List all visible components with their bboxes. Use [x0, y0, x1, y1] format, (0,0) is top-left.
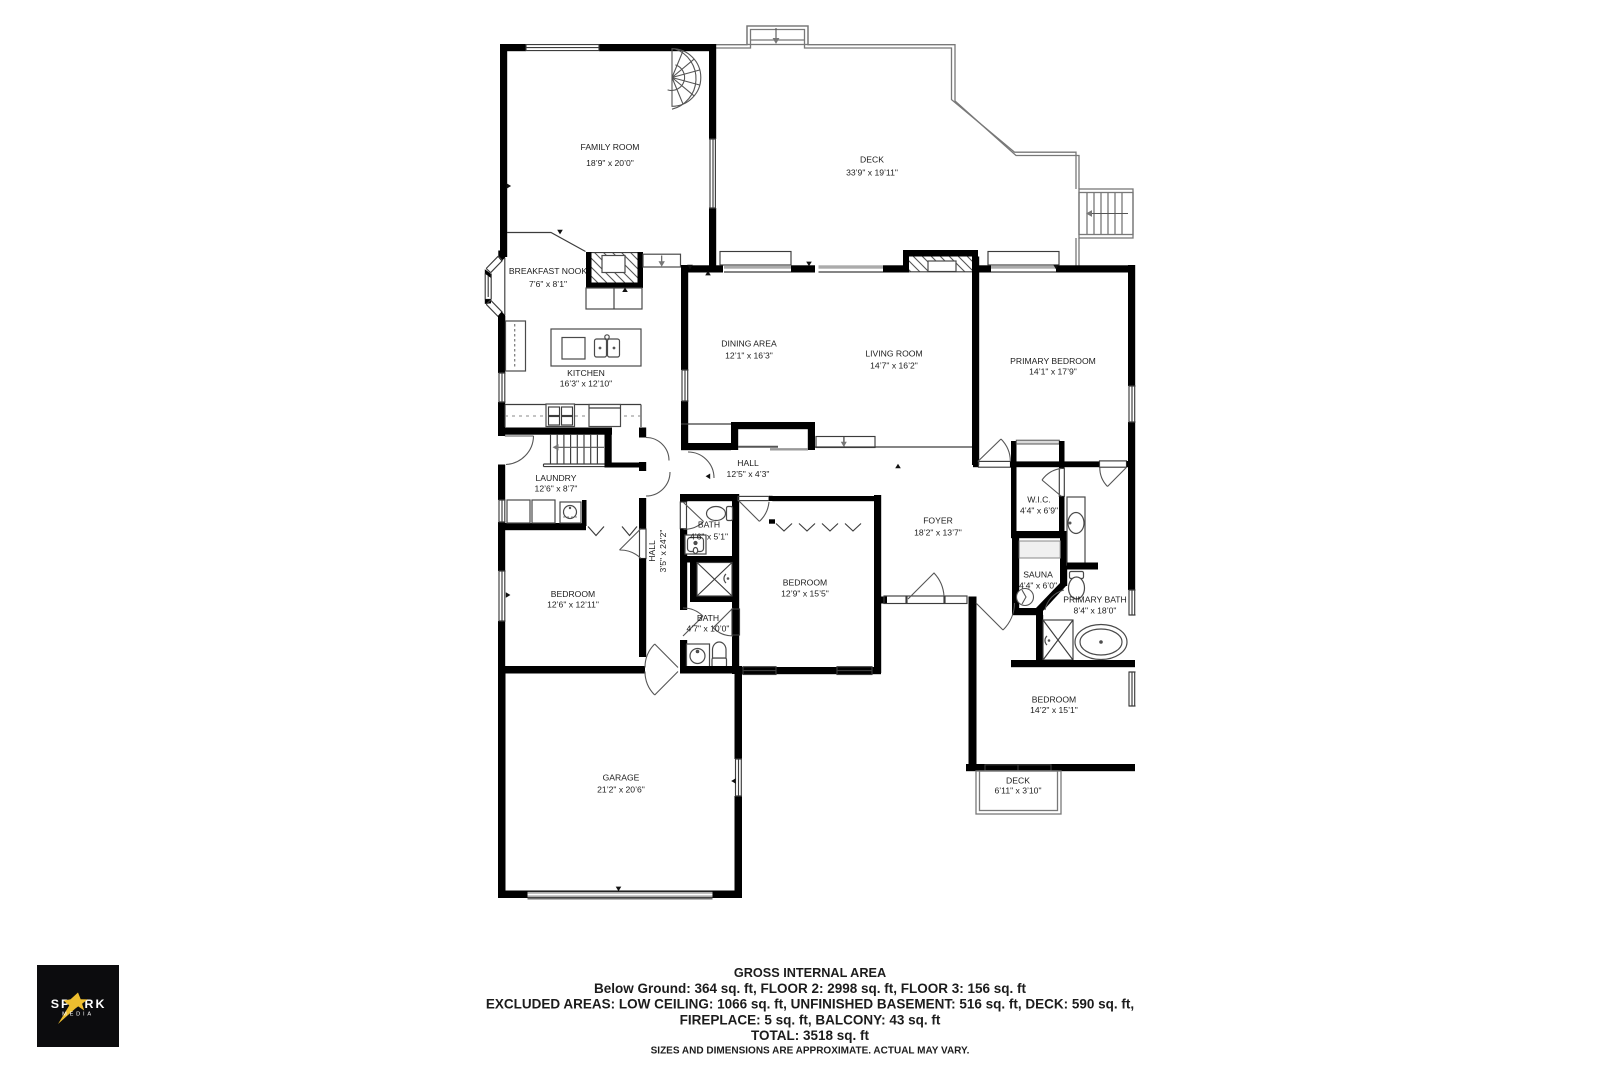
svg-text:RK: RK — [85, 997, 107, 1011]
svg-text:HALL: HALL — [647, 540, 657, 562]
svg-text:KITCHEN: KITCHEN — [567, 368, 605, 378]
svg-text:EXCLUDED AREAS: LOW CEILING: 1: EXCLUDED AREAS: LOW CEILING: 1066 sq. ft… — [486, 997, 1134, 1012]
svg-text:GROSS INTERNAL AREA: GROSS INTERNAL AREA — [734, 966, 886, 980]
svg-text:FIREPLACE: 5 sq. ft, BALCONY:: FIREPLACE: 5 sq. ft, BALCONY: 43 sq. ft — [680, 1012, 941, 1027]
svg-text:8’4" x 18’0": 8’4" x 18’0" — [1074, 606, 1117, 616]
svg-text:BEDROOM: BEDROOM — [551, 589, 595, 599]
svg-text:Below Ground: 364 sq. ft, FLOO: Below Ground: 364 sq. ft, FLOOR 2: 2998 … — [594, 981, 1027, 996]
svg-text:SIZES AND DIMENSIONS ARE APPRO: SIZES AND DIMENSIONS ARE APPROXIMATE. AC… — [651, 1046, 970, 1057]
svg-text:BATH: BATH — [697, 613, 719, 623]
svg-text:16’3" x 12’10": 16’3" x 12’10" — [560, 379, 612, 389]
svg-text:4’4" x 6’9": 4’4" x 6’9" — [1020, 506, 1058, 516]
svg-text:BATH: BATH — [698, 520, 720, 530]
svg-text:12’9" x 15’5": 12’9" x 15’5" — [781, 589, 829, 599]
svg-text:6’11" x 3’10": 6’11" x 3’10" — [994, 786, 1041, 796]
svg-text:TOTAL: 3518 sq. ft: TOTAL: 3518 sq. ft — [751, 1028, 870, 1043]
svg-text:14’1" x 17’9": 14’1" x 17’9" — [1029, 367, 1077, 377]
svg-text:12’5" x 4’3": 12’5" x 4’3" — [727, 469, 770, 479]
svg-text:4’7" x 10’0": 4’7" x 10’0" — [687, 624, 730, 634]
svg-text:14’2" x 15’1": 14’2" x 15’1" — [1030, 705, 1078, 715]
svg-text:21’2" x 20’6": 21’2" x 20’6" — [597, 785, 645, 795]
svg-text:W.I.C.: W.I.C. — [1027, 495, 1050, 505]
svg-text:3’5" x 24’2": 3’5" x 24’2" — [658, 530, 668, 573]
svg-text:14’7" x 16’2": 14’7" x 16’2" — [870, 361, 918, 371]
svg-text:BEDROOM: BEDROOM — [1032, 695, 1076, 705]
svg-text:PRIMARY BATH: PRIMARY BATH — [1063, 595, 1127, 605]
svg-text:FOYER: FOYER — [923, 516, 953, 526]
svg-text:4’4" x 6’0": 4’4" x 6’0" — [1019, 581, 1057, 591]
svg-text:LAUNDRY: LAUNDRY — [536, 473, 577, 483]
svg-text:GARAGE: GARAGE — [603, 773, 640, 783]
svg-text:33’9" x 19’11": 33’9" x 19’11" — [846, 168, 898, 178]
svg-text:PRIMARY BEDROOM: PRIMARY BEDROOM — [1010, 356, 1096, 366]
svg-text:12’1" x 16’3": 12’1" x 16’3" — [725, 351, 773, 361]
svg-text:HALL: HALL — [737, 458, 759, 468]
svg-text:12’6" x 8’7": 12’6" x 8’7" — [535, 484, 578, 494]
svg-text:4’6" x 5’1": 4’6" x 5’1" — [690, 532, 728, 542]
svg-text:BEDROOM: BEDROOM — [783, 578, 827, 588]
svg-text:12’6" x 12’11": 12’6" x 12’11" — [547, 600, 599, 610]
svg-text:MEDIA: MEDIA — [62, 1012, 94, 1018]
svg-text:LIVING ROOM: LIVING ROOM — [865, 349, 922, 359]
svg-text:18’2" x 13’7": 18’2" x 13’7" — [914, 528, 962, 538]
svg-text:BREAKFAST NOOK: BREAKFAST NOOK — [509, 266, 587, 276]
svg-text:SAUNA: SAUNA — [1023, 570, 1053, 580]
svg-text:18’9" x 20’0": 18’9" x 20’0" — [586, 158, 634, 168]
svg-text:DECK: DECK — [1006, 776, 1030, 786]
svg-text:FAMILY ROOM: FAMILY ROOM — [581, 142, 640, 152]
svg-text:DECK: DECK — [860, 155, 884, 165]
svg-text:DINING AREA: DINING AREA — [721, 339, 777, 349]
svg-text:7’6" x 8’1": 7’6" x 8’1" — [529, 279, 567, 289]
